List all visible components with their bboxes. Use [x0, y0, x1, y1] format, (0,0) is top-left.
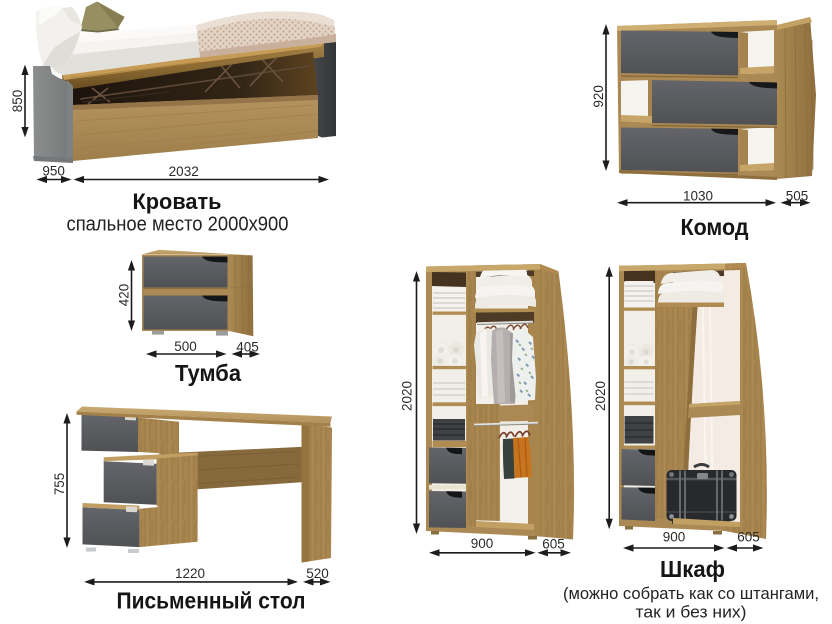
svg-text:2032: 2032: [169, 164, 199, 179]
svg-text:520: 520: [306, 566, 329, 581]
svg-text:(можно собрать как со штангами: (можно собрать как со штангами,: [563, 584, 819, 603]
svg-text:1220: 1220: [175, 566, 205, 581]
svg-text:так и без них): так и без них): [636, 603, 747, 622]
svg-text:420: 420: [117, 284, 132, 307]
svg-text:950: 950: [42, 164, 65, 179]
svg-text:2020: 2020: [400, 381, 415, 411]
svg-text:500: 500: [174, 339, 197, 354]
svg-text:755: 755: [52, 473, 67, 496]
svg-text:2020: 2020: [593, 381, 608, 411]
svg-text:900: 900: [663, 530, 686, 545]
svg-text:Комод: Комод: [681, 214, 749, 240]
svg-text:405: 405: [236, 340, 259, 355]
svg-text:605: 605: [542, 537, 565, 552]
svg-text:605: 605: [737, 530, 760, 545]
svg-text:Письменный стол: Письменный стол: [117, 588, 306, 614]
svg-text:Тумба: Тумба: [175, 360, 242, 386]
svg-text:спальное место 2000x900: спальное место 2000x900: [67, 213, 289, 236]
svg-text:Кровать: Кровать: [133, 189, 222, 214]
svg-text:920: 920: [591, 85, 606, 108]
svg-text:505: 505: [786, 188, 809, 203]
svg-text:850: 850: [10, 90, 25, 113]
svg-text:Шкаф: Шкаф: [660, 556, 725, 582]
svg-text:900: 900: [471, 536, 494, 551]
svg-text:1030: 1030: [683, 188, 713, 203]
